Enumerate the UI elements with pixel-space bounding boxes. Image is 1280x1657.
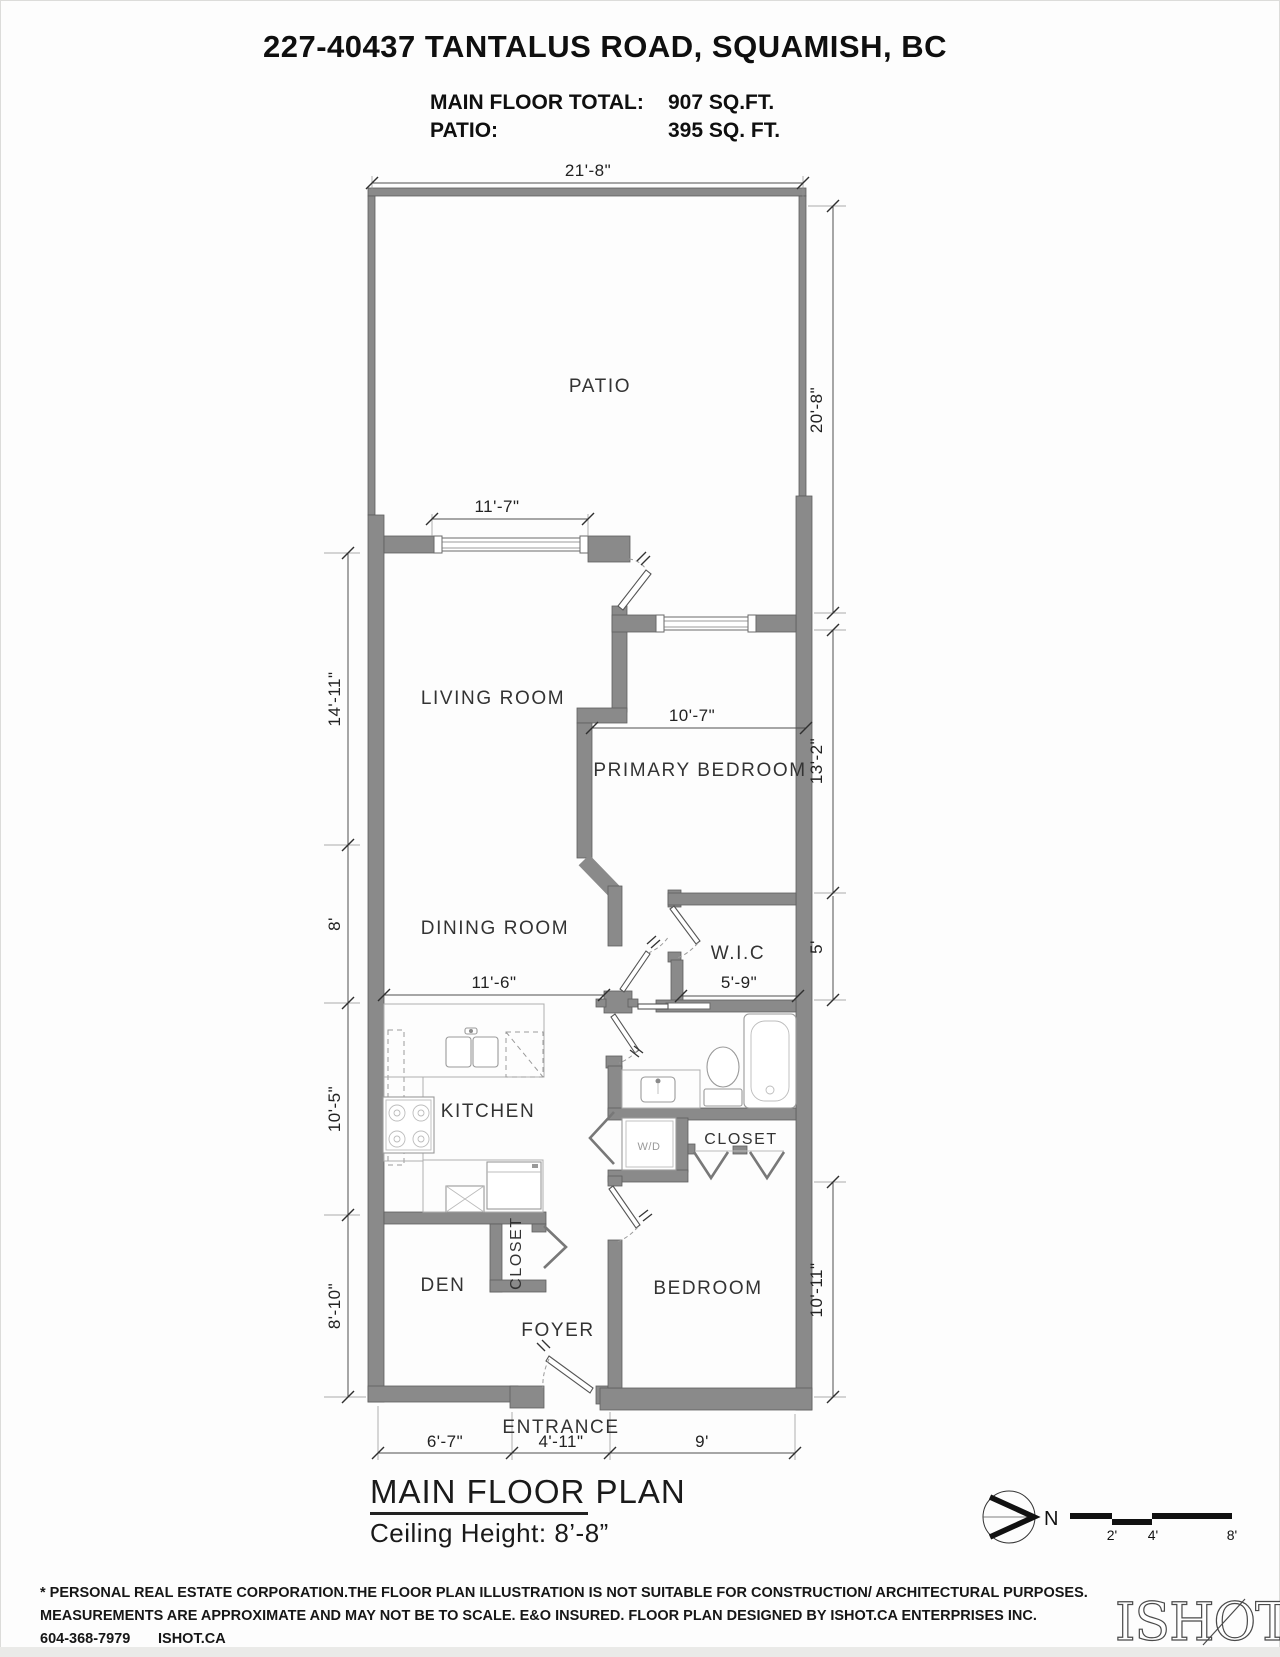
plan-title: MAIN FLOOR PLAN bbox=[370, 1473, 686, 1510]
scale-tick-8ft: 8' bbox=[1227, 1527, 1237, 1543]
disclaimer-line-1: * PERSONAL REAL ESTATE CORPORATION.THE F… bbox=[40, 1585, 1088, 1601]
dim-dining-height: 8' bbox=[325, 917, 344, 931]
ishot-logo-text: ISHOT bbox=[1115, 1593, 1280, 1653]
room-label-dining-room: DINING ROOM bbox=[421, 918, 570, 939]
room-label-kitchen: KITCHEN bbox=[441, 1101, 536, 1122]
room-label-entrance: ENTRANCE bbox=[502, 1417, 619, 1438]
dim-wic-height: 5' bbox=[807, 940, 826, 954]
floor-plan-canvas: 227-40437 TANTALUS ROAD, SQUAMISH, BC MA… bbox=[0, 0, 1280, 1657]
patio-area-value: 395 SQ. FT. bbox=[668, 119, 780, 142]
stove bbox=[383, 1097, 434, 1153]
ceiling-height: Ceiling Height: 8’-8” bbox=[370, 1518, 609, 1548]
dim-living-window: 11'-7" bbox=[474, 497, 519, 516]
dim-wic-width: 5'-9" bbox=[721, 973, 757, 992]
ishot-logo: ISHOT bbox=[1115, 1593, 1280, 1653]
toilet-tank bbox=[704, 1089, 742, 1106]
dim-dining-width: 11'-6" bbox=[471, 973, 516, 992]
sink-faucet bbox=[656, 1079, 661, 1084]
toilet-bowl bbox=[707, 1047, 739, 1087]
room-label-primary-bedroom: PRIMARY BEDROOM bbox=[593, 760, 806, 781]
room-label-patio: PATIO bbox=[569, 376, 631, 397]
kitchen-sink-right-basin bbox=[473, 1037, 498, 1067]
room-label-bedroom: BEDROOM bbox=[653, 1278, 762, 1299]
dim-primary-height: 13'-2" bbox=[807, 738, 826, 784]
main-floor-total-value: 907 SQ.FT. bbox=[668, 91, 774, 114]
living-room-window bbox=[434, 536, 588, 553]
room-label-den: DEN bbox=[421, 1275, 466, 1296]
dim-den-width: 6'-7" bbox=[427, 1432, 463, 1451]
primary-bedroom-window bbox=[656, 615, 756, 632]
disclaimer-phone: 604-368-7979 bbox=[40, 1631, 130, 1647]
washer-dryer-label: W/D bbox=[638, 1141, 661, 1153]
dim-kitchen-height: 10'-5" bbox=[325, 1086, 344, 1132]
dim-primary-width: 10'-7" bbox=[669, 706, 715, 725]
plan-title-underline bbox=[370, 1512, 588, 1515]
dim-patio-height: 20'-8" bbox=[807, 387, 826, 433]
room-label-living-room: LIVING ROOM bbox=[421, 688, 565, 709]
kitchen-cabinet bbox=[487, 1162, 541, 1209]
refrigerator bbox=[446, 1186, 484, 1212]
room-label-bedroom-closet: CLOSET bbox=[704, 1131, 778, 1148]
dim-den-height: 8'-10" bbox=[325, 1283, 344, 1329]
floor-plan-page: 227-40437 TANTALUS ROAD, SQUAMISH, BC MA… bbox=[0, 0, 1280, 1657]
laundry: W/D bbox=[622, 1118, 676, 1170]
room-label-wic: W.I.C bbox=[711, 943, 765, 964]
page-title: 227-40437 TANTALUS ROAD, SQUAMISH, BC bbox=[263, 29, 947, 64]
scale-tick-4ft: 4' bbox=[1148, 1527, 1158, 1543]
bathroom-pocket-door bbox=[638, 1003, 710, 1009]
room-label-foyer: FOYER bbox=[521, 1320, 594, 1341]
bottom-strip bbox=[0, 1647, 1280, 1657]
dim-bedroom-height: 10'-11" bbox=[807, 1263, 826, 1318]
dim-bedroom-width: 9' bbox=[695, 1432, 709, 1451]
dim-patio-width: 21'-8" bbox=[565, 161, 611, 180]
disclaimer-website: ISHOT.CA bbox=[158, 1631, 226, 1647]
north-label: N bbox=[1044, 1508, 1058, 1530]
dim-living-height: 14'-11" bbox=[325, 672, 344, 727]
scale-tick-2ft: 2' bbox=[1107, 1527, 1117, 1543]
kitchen-sink-left-basin bbox=[446, 1037, 471, 1067]
room-label-foyer-closet: CLOSET bbox=[508, 1216, 525, 1290]
patio-area-label: PATIO: bbox=[430, 119, 498, 142]
main-floor-total-label: MAIN FLOOR TOTAL: bbox=[430, 91, 644, 114]
disclaimer-line-2: MEASUREMENTS ARE APPROXIMATE AND MAY NOT… bbox=[40, 1608, 1037, 1624]
